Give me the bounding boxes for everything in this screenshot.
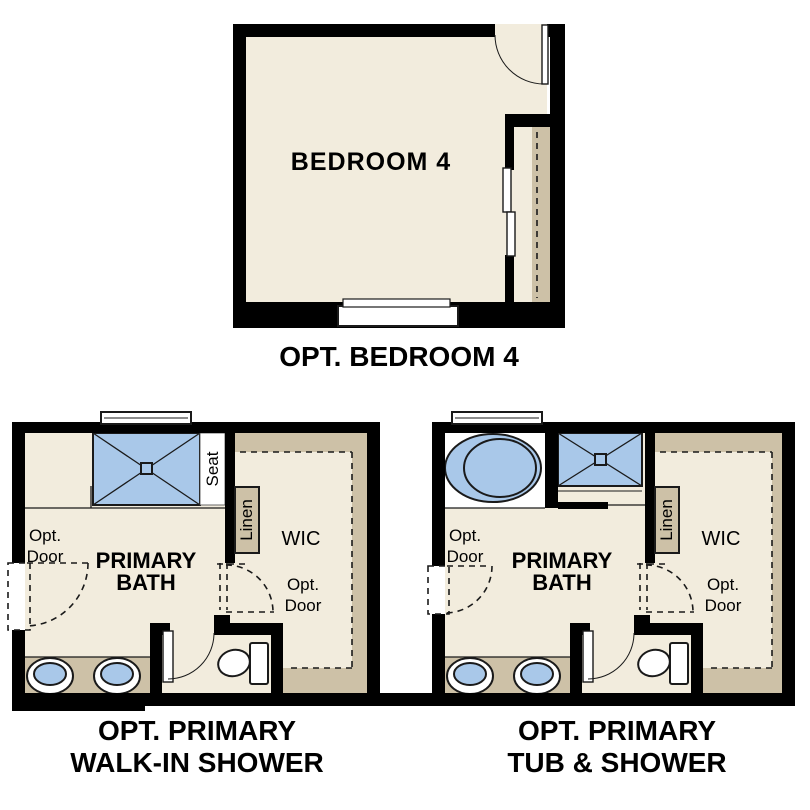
linen-label: Linen (237, 499, 256, 541)
bath-wall-left-upper (432, 422, 445, 566)
bath-room-label-line2: BATH (532, 570, 591, 595)
shower-curb-wall (558, 502, 608, 509)
closet-floor (514, 127, 532, 302)
toilet-room-wall-left (150, 623, 162, 693)
seat-label: Seat (203, 451, 222, 486)
walk-in-caption-line2: WALK-IN SHOWER (70, 747, 324, 778)
wic-label: WIC (702, 528, 741, 550)
sink-basin (454, 663, 486, 685)
bedroom-door-opening (495, 24, 547, 37)
tub-shower-caption-line1: OPT. PRIMARY (518, 715, 716, 746)
bath-room-label-line2: BATH (116, 570, 175, 595)
sink-basin (34, 663, 66, 685)
floorplan-canvas: BEDROOM 4 OPT. BEDROOM 4 (0, 0, 810, 810)
wic-label: WIC (282, 528, 321, 550)
toilet-room-wall-left (570, 623, 582, 693)
tub-shower-caption-line2: TUB & SHOWER (507, 747, 726, 778)
bath-wall-right (367, 422, 380, 693)
opt-door-label-line1: Opt. (449, 526, 481, 545)
sink-basin (101, 663, 133, 685)
plan-walk-in-shower: Opt. Door PRIMARY BATH WIC Opt. Door Sea… (8, 412, 380, 778)
bedroom-wall-top (233, 24, 495, 37)
closet-bypass-door-panel (503, 168, 511, 212)
bedroom-door-leaf (542, 25, 548, 84)
plan-tub-shower: Opt. Door PRIMARY BATH WIC Opt. Door Lin… (428, 412, 795, 778)
toilet-room-door-leaf (583, 631, 593, 682)
closet-wall-top (505, 114, 550, 127)
toilet-tank (670, 643, 688, 684)
opt-door-label-line1: Opt. (29, 526, 61, 545)
wic-opt-door-label-line1: Opt. (287, 575, 319, 594)
bedroom-window (338, 306, 458, 326)
closet-bypass-door-panel (507, 212, 515, 256)
walk-in-caption-line1: OPT. PRIMARY (98, 715, 296, 746)
toilet-tank (250, 643, 268, 684)
sink-basin (521, 663, 553, 685)
tub-shower-divider-wall (545, 422, 558, 508)
shower-drain (595, 454, 606, 465)
wic-opt-door-label-line2: Door (285, 596, 322, 615)
linen-label: Linen (657, 499, 676, 541)
wic-partition-wall (225, 422, 235, 563)
toilet-room-door-leaf (163, 631, 173, 682)
bedroom-caption: OPT. BEDROOM 4 (279, 341, 519, 372)
wic-partition-wall (645, 422, 655, 563)
toilet-room-wall-right (691, 623, 703, 693)
bath-plans-bottom-wall-step (12, 706, 145, 711)
toilet-room-wall-right (271, 623, 283, 693)
plan-bedroom4: BEDROOM 4 OPT. BEDROOM 4 (233, 24, 565, 372)
bedroom-window-sill (343, 299, 450, 307)
floorplan-sheet: BEDROOM 4 OPT. BEDROOM 4 (0, 0, 810, 810)
bath-wall-top (12, 422, 380, 433)
opt-door-label-line2: Door (27, 547, 64, 566)
bathtub (445, 434, 541, 502)
opt-door-label-line2: Door (447, 547, 484, 566)
wic-opt-door-label-line1: Opt. (707, 575, 739, 594)
bath-wall-left-upper (12, 422, 25, 563)
bath-wall-right (782, 422, 795, 693)
bedroom-wall-right (550, 24, 565, 328)
bedroom-room-label: BEDROOM 4 (291, 148, 451, 176)
bedroom-wall-left (233, 24, 246, 328)
closet-carpet (532, 127, 550, 302)
closet-wall-stub-lower (505, 255, 514, 302)
bath-wall-left-lower (12, 630, 25, 693)
bath-wall-left-lower (432, 614, 445, 693)
closet-wall-stub-upper (505, 127, 514, 170)
shower-drain (141, 463, 152, 474)
wic-opt-door-label-line2: Door (705, 596, 742, 615)
bath-plans-bottom-wall (12, 693, 795, 706)
